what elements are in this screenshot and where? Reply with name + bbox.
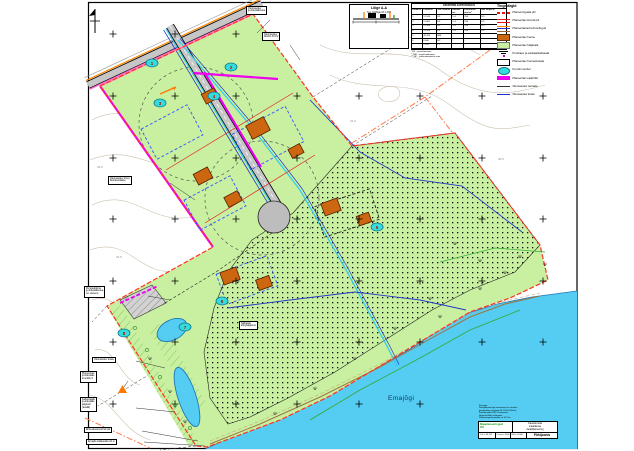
utilities-swatch: [497, 26, 510, 32]
company-name: Maaplaneeringud OÜ: [479, 422, 513, 433]
legend-item: Puurkaev ja sanitaarkaitseala: [497, 50, 575, 56]
callout-culvert: Olemasolev truuplikvideeritakse: [108, 176, 132, 185]
callout-ditch: Olemasolev kraav: [92, 357, 116, 363]
date: Kuupäev 2005: [496, 433, 511, 438]
svg-text:30.5: 30.5: [498, 157, 504, 161]
well-swatch: [497, 50, 510, 56]
building-swatch: [497, 34, 510, 40]
building-rights-table: KRUNTIDE EHITUSÕIGUS Krundi nr Pindala m…: [411, 3, 507, 50]
drawing-name: Põhijoonis: [527, 433, 557, 438]
work-number: Töö nr 04-112: [479, 433, 496, 438]
track-swatch: [497, 83, 510, 89]
cell: –: [452, 44, 464, 49]
svg-text:31.0: 31.0: [350, 119, 356, 123]
legend-item: Planeeritav hoone: [497, 34, 575, 40]
callout-perspective-road: Perspektiivnejuurdepääsutee(vt. skeem): [84, 286, 105, 298]
footnote: *** HP – puhkeotstarbeline maa: [411, 56, 505, 59]
legend: Tingmärgid Planeeringuala piir Planeerit…: [497, 4, 575, 100]
legend-item: Krundi number: [497, 67, 575, 73]
turnaround-circle: [258, 201, 290, 233]
title-block: Koostaja: Detailplaneeringu koostamisel …: [478, 404, 558, 439]
legend-item: Planeeritav haljasala: [497, 42, 575, 48]
electric-swatch: [497, 75, 510, 81]
legend-title: Tingmärgid: [497, 4, 575, 8]
title-notes: Koostaja: Detailplaneeringu koostamisel …: [478, 404, 558, 421]
callout-building-exclusion: Ehituskeeluvööndi piir: [84, 427, 112, 433]
cell: –: [464, 44, 481, 49]
legend-item: Planeeritav elektriliin: [497, 75, 575, 81]
river-label: Emajõgi: [388, 395, 414, 402]
svg-text:32.0: 32.0: [97, 165, 103, 169]
legend-item: Planeeritav hoonestusala: [497, 59, 575, 65]
project-name: Kavastu küla maaüksuse detailplaneering: [513, 422, 557, 433]
legend-item: Olemasolev kraav: [497, 91, 575, 97]
table-footnotes: * EP – pereelamumaa ** MM – maatulundusm…: [411, 51, 505, 59]
cell: 2 120: [423, 44, 437, 49]
callout-shore-path: Emajõe kallasrada 10 m: [86, 439, 117, 445]
cell: –: [481, 44, 497, 49]
callout-shore-access: Kallasrajalejuurdepääsjalgteelt(avalik): [80, 397, 97, 412]
legend-item: Olemasolev teerada: [497, 83, 575, 89]
ditch-swatch: [497, 91, 510, 97]
legend-item: Planeeritav krundi piir: [497, 18, 575, 24]
callout-vegetation: Säilitatavkõrghaljastus: [239, 321, 258, 330]
plot-boundary-swatch: [497, 18, 510, 24]
callout-powerline: Olemasolevõhuliin 10 kV: [262, 32, 280, 41]
legend-item: Planeeritavad tehnovõrgud: [497, 26, 575, 32]
scale: Mõõt 1:1000: [511, 433, 527, 438]
envelope-swatch: [497, 59, 510, 65]
plot-number-swatch: [497, 67, 510, 73]
boundary-red-dash-swatch: [497, 10, 510, 16]
cell: LT: [437, 44, 452, 49]
svg-text:31.5: 31.5: [116, 255, 122, 259]
road-section-box: Lõige A-A Tee ristlõige M 1:100: [349, 4, 409, 49]
section-drawing: [350, 5, 402, 25]
legend-item: Planeeringuala piir: [497, 10, 575, 16]
cell: 7: [412, 44, 423, 49]
callout-access: Planeeritavjuurdepääskrundile 6: [80, 371, 97, 383]
plan-sheet: 1 2 3 4 5 6 7 8 31.5 32.0 31.0 30.5 Emaj…: [0, 0, 634, 451]
callout-existing-road: Olemasolevjuurdepääsutee: [246, 6, 267, 15]
greenery-swatch: [497, 42, 510, 48]
